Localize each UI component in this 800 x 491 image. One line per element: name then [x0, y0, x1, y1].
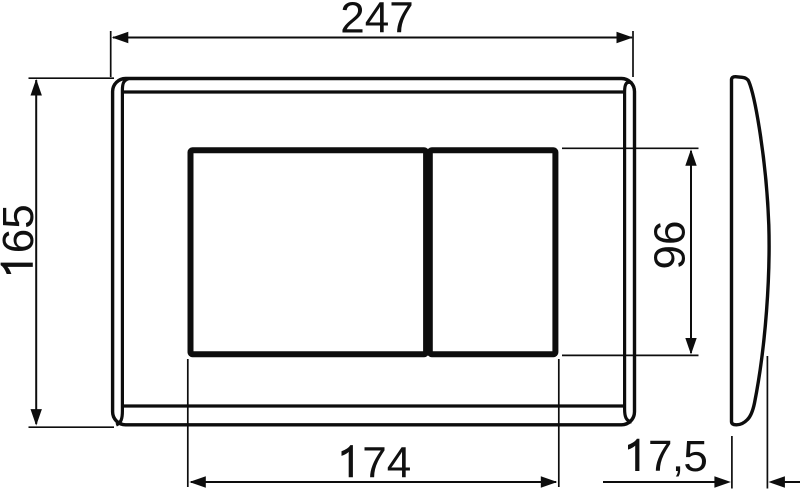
svg-text:74: 74 [362, 438, 411, 487]
svg-text:247: 247 [340, 0, 413, 43]
svg-text:96: 96 [646, 221, 695, 270]
svg-text:65: 65 [0, 204, 43, 253]
svg-text:7,5: 7,5 [648, 432, 707, 481]
